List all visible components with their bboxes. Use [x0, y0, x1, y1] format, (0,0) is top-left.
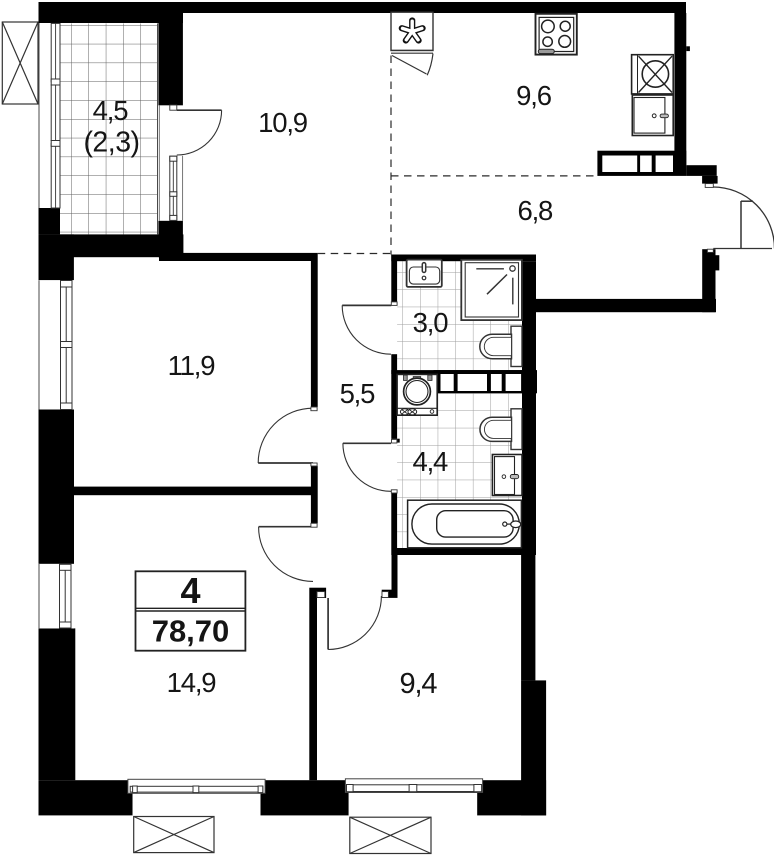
svg-text:9,6: 9,6 [516, 80, 552, 111]
svg-text:4,4: 4,4 [412, 446, 448, 477]
svg-text:4,5: 4,5 [93, 95, 129, 126]
svg-text:5,5: 5,5 [340, 378, 376, 409]
svg-text:4: 4 [180, 570, 200, 611]
svg-text:3,0: 3,0 [413, 307, 449, 338]
svg-text:9,4: 9,4 [400, 668, 438, 700]
svg-text:78,70: 78,70 [152, 614, 230, 649]
svg-text:11,9: 11,9 [168, 350, 215, 381]
svg-text:(2,3): (2,3) [83, 127, 139, 159]
svg-text:6,8: 6,8 [517, 195, 553, 226]
svg-text:14,9: 14,9 [167, 667, 216, 698]
svg-text:10,9: 10,9 [258, 107, 307, 138]
